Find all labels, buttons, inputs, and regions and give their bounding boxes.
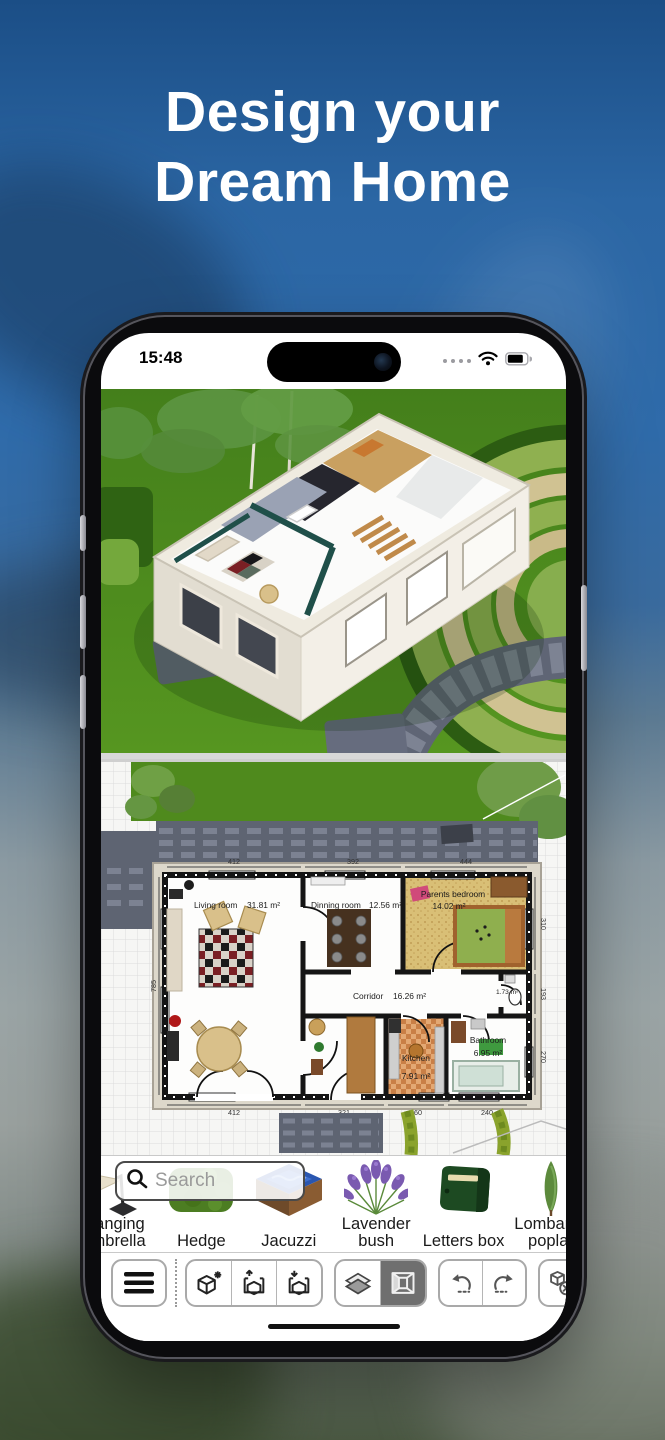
object-actions-group [185, 1259, 323, 1307]
toolbar-separator [175, 1259, 177, 1307]
clock: 15:48 [139, 348, 182, 368]
screen-footer [101, 1313, 566, 1341]
new-object-button[interactable] [187, 1261, 232, 1305]
import-cube-down-icon [285, 1269, 313, 1297]
view-3d-icon [389, 1269, 417, 1297]
hero-title-line2: Dream Home [0, 148, 665, 218]
viewport-3d[interactable] [101, 389, 566, 759]
room-label-bathroom: Bathroom [470, 1035, 506, 1045]
room-label-dining: Dinning room [311, 900, 361, 910]
svg-text:310: 310 [539, 918, 548, 930]
hero-title-line1: Design your [0, 78, 665, 148]
view-2d-icon [344, 1269, 372, 1297]
undo-button[interactable] [440, 1261, 483, 1305]
app-store-screenshot: Design your Dream Home 15:48 [0, 0, 665, 1440]
undo-icon [447, 1269, 475, 1297]
search-box[interactable] [115, 1161, 305, 1201]
front-camera [374, 353, 392, 371]
room-label-bedroom: Parents bedroom [421, 889, 485, 899]
svg-text:6.95 m²: 6.95 m² [474, 1048, 503, 1058]
library-item-lavender-bush[interactable]: Lavender bush [333, 1164, 419, 1250]
wifi-icon [478, 351, 498, 371]
svg-text:412: 412 [228, 857, 240, 866]
edit-group [538, 1259, 566, 1307]
room-label-corridor: Corridor [353, 991, 383, 1001]
svg-text:785: 785 [149, 980, 158, 992]
dynamic-island [267, 342, 401, 382]
svg-text:193: 193 [539, 988, 548, 1000]
svg-text:412: 412 [228, 1108, 240, 1117]
library-item-lombardy-poplar[interactable]: Lombardy poplar [508, 1164, 566, 1250]
battery-icon [505, 352, 532, 371]
export-project-button[interactable] [232, 1261, 277, 1305]
delete-object-icon [547, 1269, 566, 1297]
history-group [438, 1259, 527, 1307]
room-label-wc: 1.73 m² [496, 989, 519, 996]
room-label-living: Living room [194, 900, 237, 910]
view-mode-group [334, 1259, 427, 1307]
import-project-button[interactable] [277, 1261, 321, 1305]
room-label-kitchen: Kitchen [402, 1053, 430, 1063]
view-2d-button[interactable] [336, 1261, 381, 1305]
svg-text:14.02 m²: 14.02 m² [432, 901, 465, 911]
iphone-mockup: 15:48 [85, 317, 582, 1357]
volume-down-button [80, 675, 86, 729]
svg-text:270: 270 [539, 1051, 548, 1063]
lombardy-poplar-thumbnail [533, 1164, 566, 1216]
object-library: Hanging umbrella [101, 1155, 566, 1253]
letters-box-thumbnail [432, 1164, 496, 1216]
view-3d-button[interactable] [381, 1261, 425, 1305]
search-icon [125, 1167, 149, 1196]
volume-up-button [80, 595, 86, 649]
lavender-bush-thumbnail [344, 1164, 408, 1216]
redo-button[interactable] [483, 1261, 525, 1305]
svg-text:31.81 m²: 31.81 m² [247, 900, 280, 910]
svg-text:7.91 m²: 7.91 m² [402, 1071, 431, 1081]
export-cube-up-icon [240, 1269, 268, 1297]
svg-text:444: 444 [460, 857, 472, 866]
bottom-toolbar [101, 1253, 566, 1313]
svg-text:240: 240 [481, 1108, 493, 1117]
menu-button[interactable] [111, 1259, 167, 1307]
home-indicator[interactable] [268, 1324, 400, 1329]
svg-text:392: 392 [347, 857, 359, 866]
hero-title: Design your Dream Home [0, 78, 665, 217]
status-bar: 15:48 [101, 333, 566, 389]
delete-object-button[interactable] [540, 1261, 566, 1305]
status-icons [443, 351, 532, 371]
phone-screen: 15:48 [101, 333, 566, 1341]
search-input[interactable] [153, 1169, 287, 1193]
menu-icon [124, 1271, 154, 1295]
svg-text:16.26 m²: 16.26 m² [393, 991, 426, 1001]
power-button [581, 585, 587, 671]
svg-text:12.56 m²: 12.56 m² [369, 900, 402, 910]
viewport-2d-floorplan[interactable]: Living room 31.81 m² Dinning room 12.56 … [101, 759, 566, 1155]
redo-icon [490, 1269, 518, 1297]
action-button [80, 515, 86, 551]
cellular-signal-dots-icon [443, 359, 471, 363]
library-item-letters-box[interactable]: Letters box [421, 1164, 507, 1250]
new-object-cube-icon [195, 1269, 223, 1297]
